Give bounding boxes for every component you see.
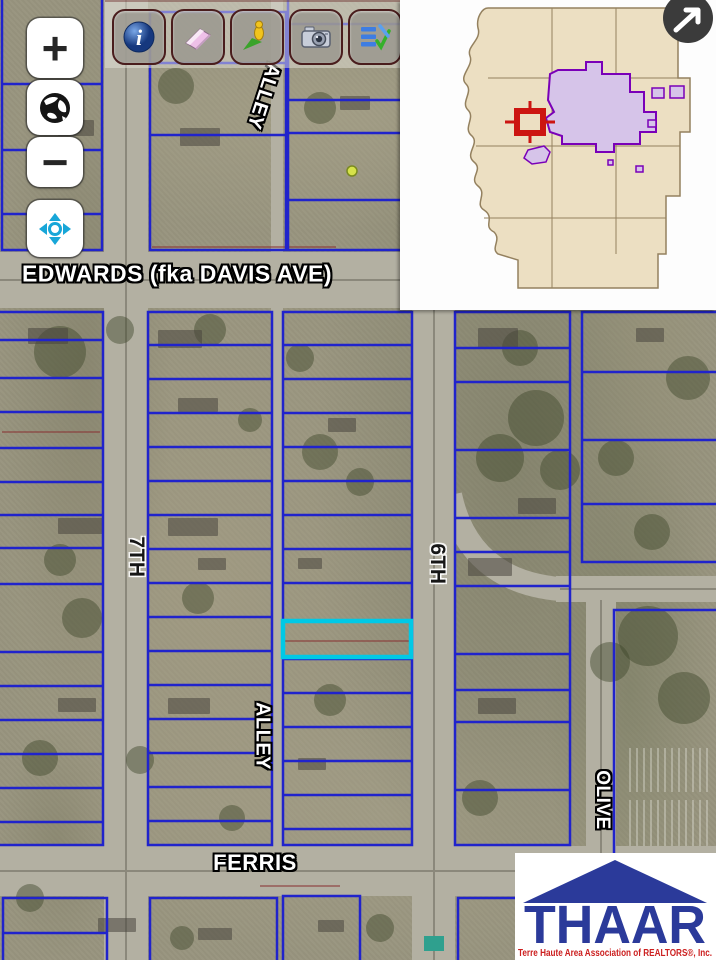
overview-inset-map[interactable] <box>400 0 716 310</box>
full-extent-button[interactable] <box>27 80 83 135</box>
map-toolbar: i <box>105 0 445 68</box>
eraser-tool-button[interactable] <box>171 9 225 65</box>
map-viewer: EDWARDS (fka DAVIS AVE)ALLEY7TH6THALLEYO… <box>0 0 716 960</box>
parking-stripes <box>630 748 707 846</box>
marker-tool-button[interactable] <box>230 9 284 65</box>
info-icon: i <box>122 20 156 54</box>
logo-title: THAAR <box>524 895 706 955</box>
pan-crosshair-icon <box>38 212 72 246</box>
info-tool-button[interactable]: i <box>112 9 166 65</box>
teal-roof-building <box>424 936 444 951</box>
logo-tagline: Terre Haute Area Association of REALTORS… <box>518 948 712 959</box>
selected-parcel-highlight[interactable] <box>283 621 411 657</box>
thaar-logo: THAAR Terre Haute Area Association of RE… <box>515 853 716 960</box>
camera-icon <box>299 20 333 54</box>
report-tool-button[interactable] <box>348 9 402 65</box>
camera-tool-button[interactable] <box>289 9 343 65</box>
point-feature <box>347 166 357 176</box>
minus-icon: − <box>42 139 69 185</box>
globe-icon <box>38 91 72 125</box>
zoom-in-button[interactable]: + <box>27 18 83 78</box>
svg-text:i: i <box>136 25 143 50</box>
zoom-out-button[interactable]: − <box>27 137 83 187</box>
report-icon <box>358 20 392 54</box>
plus-icon: + <box>42 25 69 71</box>
marker-icon <box>240 20 274 54</box>
eraser-icon <box>181 20 215 54</box>
county-outline <box>464 8 690 288</box>
pan-button[interactable] <box>27 200 83 257</box>
